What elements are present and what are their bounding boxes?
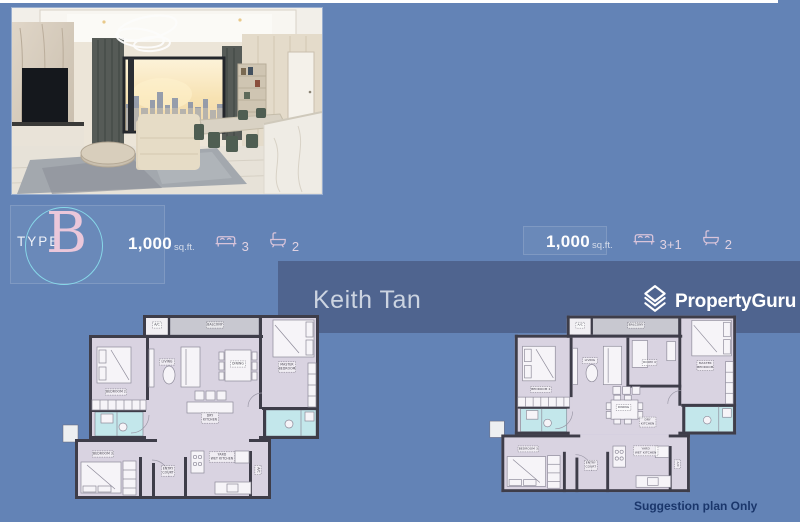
bed-icon: [633, 230, 655, 252]
svg-text:WET KITCHEN: WET KITCHEN: [211, 457, 234, 461]
svg-text:LIVING: LIVING: [162, 360, 173, 364]
bath-icon: [269, 231, 287, 254]
specs-right: 1,000 sq.ft. 3+1 2: [546, 229, 732, 252]
area-value-left: 1,000: [128, 234, 172, 254]
svg-text:BEDROOM: BEDROOM: [279, 367, 296, 371]
svg-text:A/C: A/C: [154, 323, 160, 327]
svg-text:A/C: A/C: [676, 462, 680, 467]
svg-text:A/C: A/C: [257, 467, 261, 473]
svg-text:DINING: DINING: [232, 362, 244, 366]
suggestion-note: Suggestion plan Only: [634, 499, 757, 513]
bed-count-right: 3+1: [660, 237, 682, 252]
svg-text:WET KITCHEN: WET KITCHEN: [635, 450, 657, 454]
bath-count-right: 2: [725, 237, 732, 252]
area-unit-left: sq.ft.: [174, 242, 195, 254]
top-border-strip: [0, 0, 778, 3]
svg-text:BEDROOM 3: BEDROOM 3: [519, 446, 538, 450]
svg-text:COURT: COURT: [585, 465, 596, 469]
svg-text:BEDROOM: BEDROOM: [697, 365, 714, 369]
specs-left: 1,000 sq.ft. 3 2: [128, 231, 299, 254]
area-value-right: 1,000: [546, 232, 590, 252]
agent-watermark: Keith Tan: [313, 286, 421, 315]
svg-text:DINING: DINING: [618, 405, 630, 409]
area-unit-right: sq.ft.: [592, 240, 613, 252]
living-room-photo-art: [12, 8, 322, 194]
svg-text:A/C: A/C: [578, 323, 583, 327]
svg-text:COURT: COURT: [162, 471, 173, 475]
svg-text:BEDROOM 2: BEDROOM 2: [106, 390, 126, 394]
svg-text:KITCHEN: KITCHEN: [641, 422, 655, 426]
svg-text:BEDROOM 3: BEDROOM 3: [93, 452, 113, 456]
listing-flyer: TYPE B 1,000 sq.ft. 3 2 Keith Tan: [0, 0, 800, 522]
svg-text:ROOM 4: ROOM 4: [643, 360, 656, 364]
bed-icon: [215, 232, 237, 254]
svg-text:BALCONY: BALCONY: [207, 323, 222, 327]
svg-text:BALCONY: BALCONY: [629, 323, 644, 327]
svg-text:KITCHEN: KITCHEN: [203, 418, 218, 422]
floor-plan-right: A/CBALCONYBEDROOM 2LIVINGROOM 4MASTERBED…: [486, 306, 738, 494]
bath-count-left: 2: [292, 239, 299, 254]
bed-count-left: 3: [242, 239, 249, 254]
svg-text:LIVING: LIVING: [585, 358, 596, 362]
type-letter: B: [46, 206, 87, 262]
living-room-photo: [12, 8, 322, 194]
svg-text:BEDROOM 2: BEDROOM 2: [531, 387, 550, 391]
bath-icon: [702, 229, 720, 252]
floor-plan-left: A/CBALCONYBEDROOM 2LIVINGDININGMASTERBED…: [59, 305, 321, 501]
